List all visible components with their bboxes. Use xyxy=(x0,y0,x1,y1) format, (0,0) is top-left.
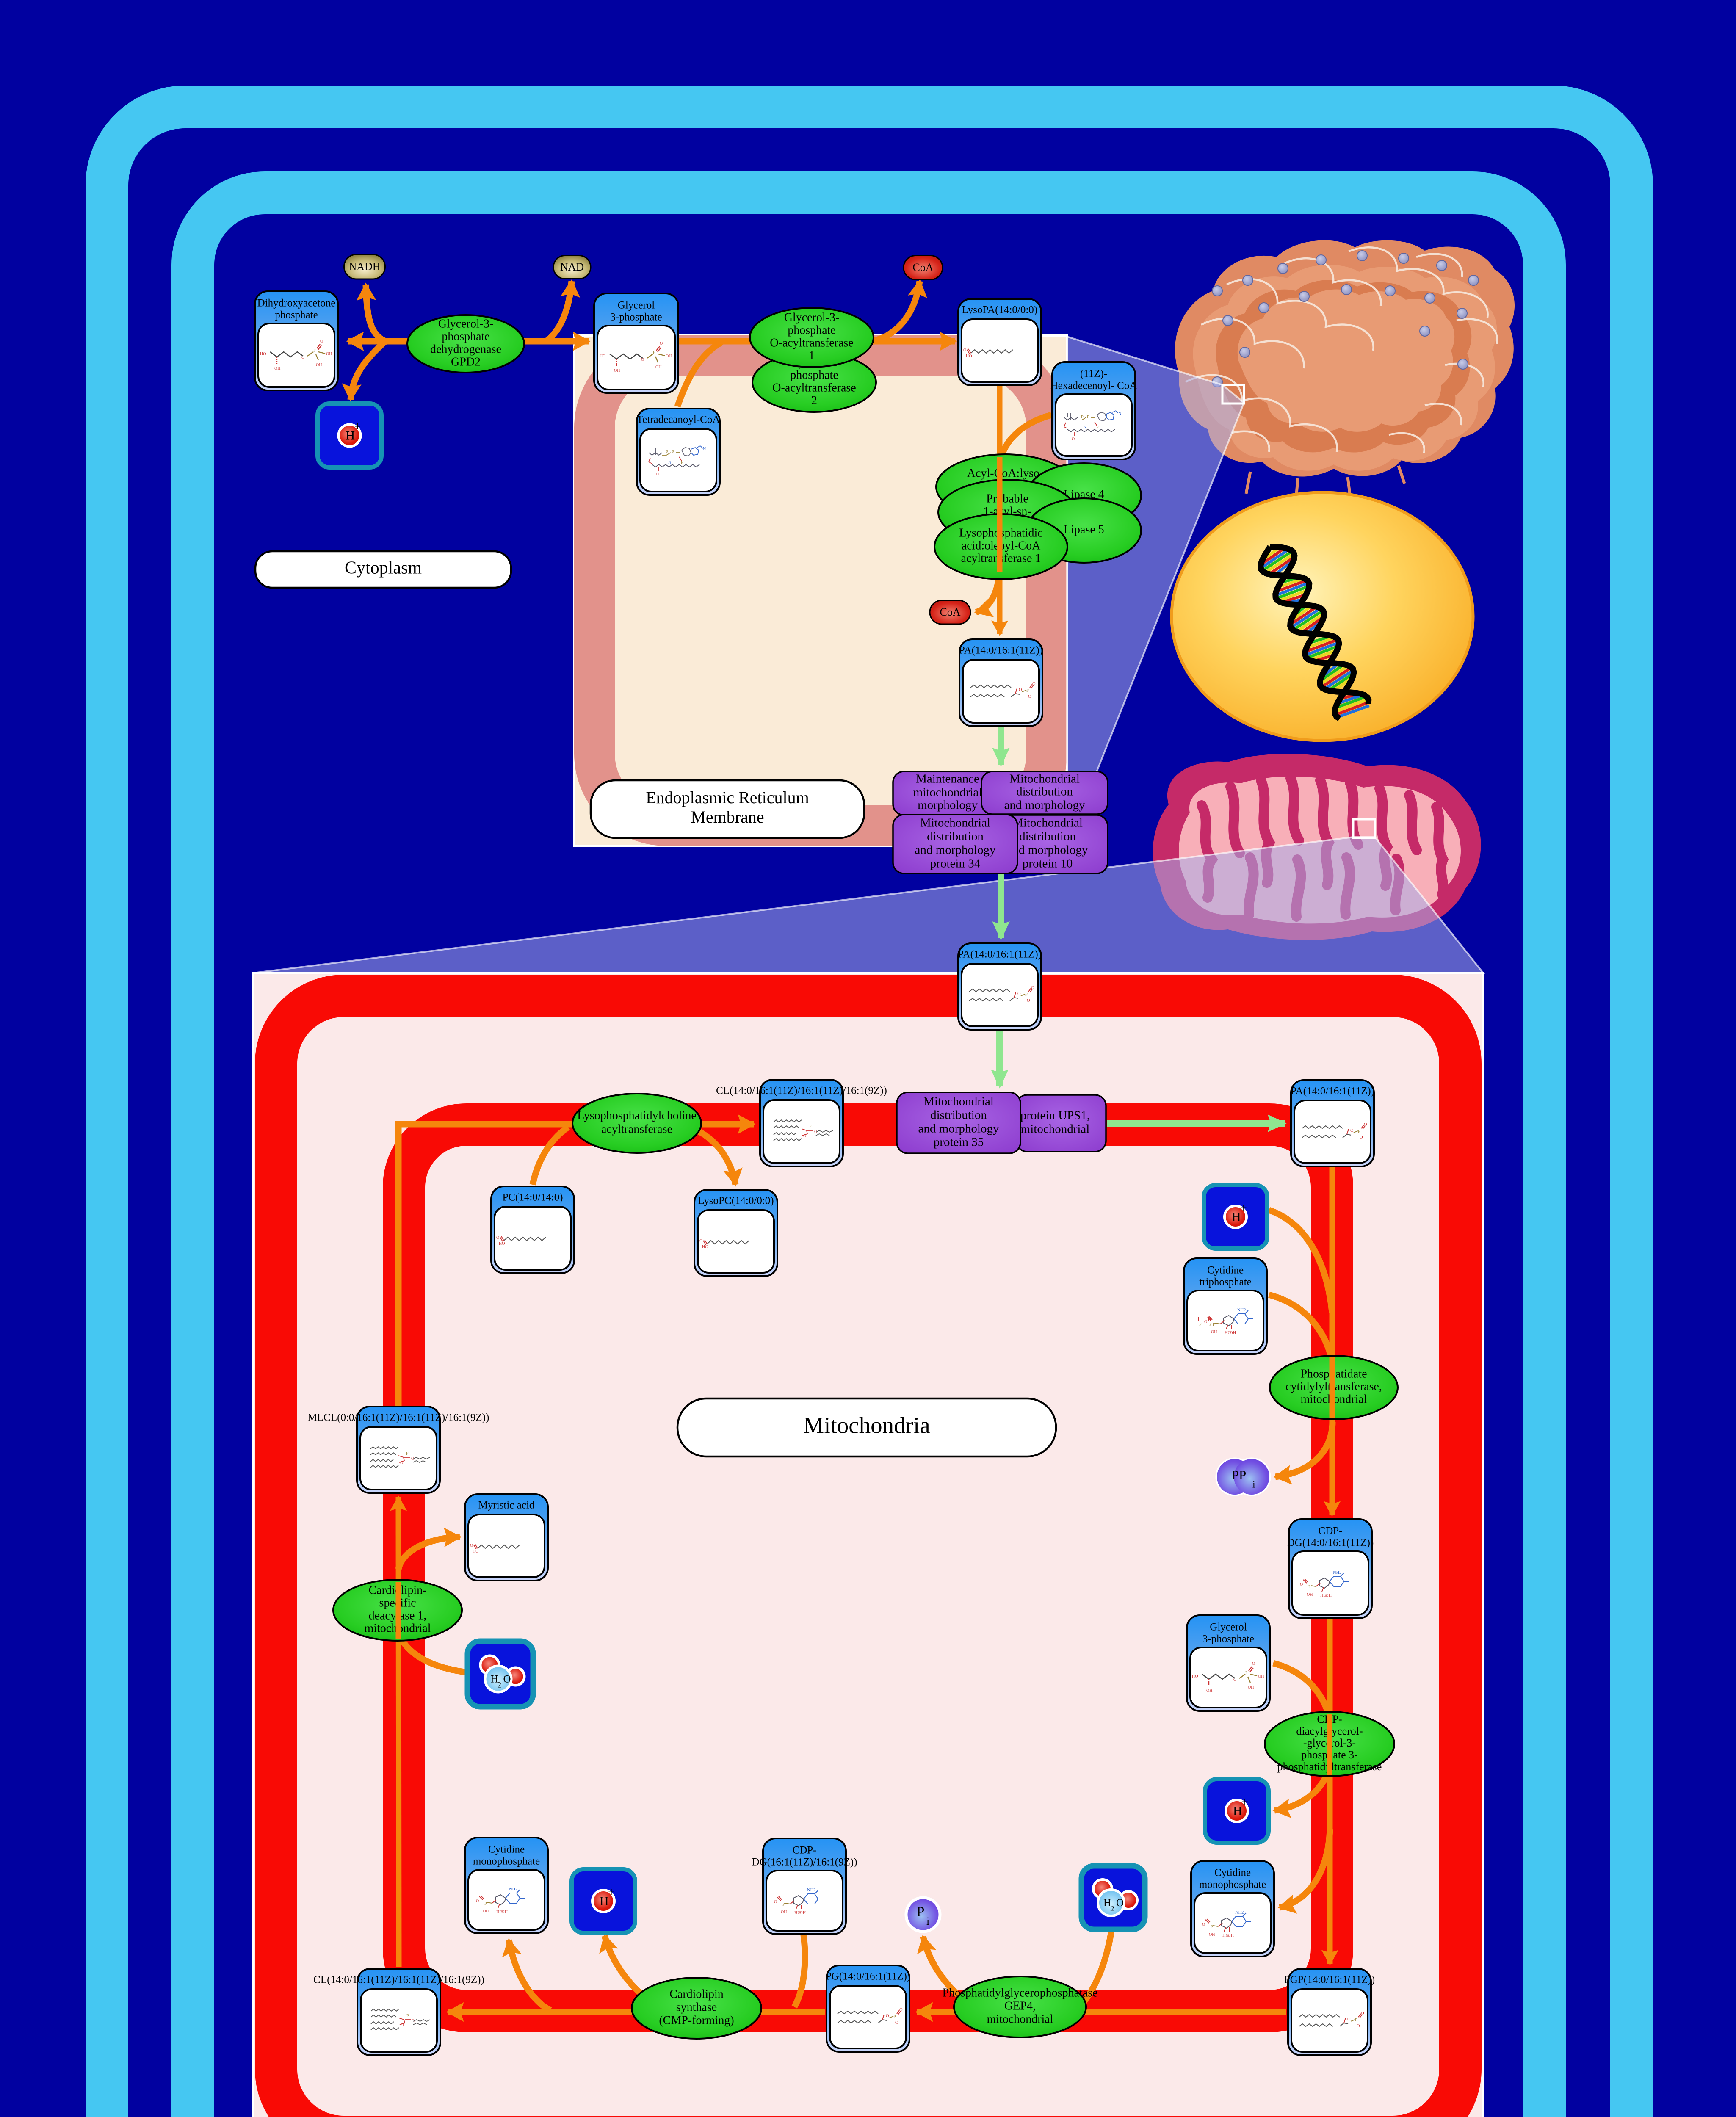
svg-text:P: P xyxy=(917,1904,925,1920)
svg-text:protein 10: protein 10 xyxy=(1023,857,1073,871)
svg-text:+: + xyxy=(354,420,361,434)
svg-text:Hexadecenoyl- CoA: Hexadecenoyl- CoA xyxy=(1050,380,1137,392)
svg-text:NAD: NAD xyxy=(560,261,584,273)
svg-text:DG(16:1(11Z)/16:1(9Z)): DG(16:1(11Z)/16:1(9Z)) xyxy=(752,1857,857,1868)
svg-text:Glycerol: Glycerol xyxy=(1210,1622,1247,1633)
svg-text:Mitochondrial: Mitochondrial xyxy=(920,816,990,830)
svg-text:H: H xyxy=(600,1894,609,1908)
svg-text:PG(14:0/16:1(11Z)): PG(14:0/16:1(11Z)) xyxy=(826,1971,910,1982)
svg-text:Phosphatidylglycerophosphatase: Phosphatidylglycerophosphatase xyxy=(942,1986,1097,1999)
svg-text:i: i xyxy=(926,1915,929,1927)
svg-text:PA(14:0/16:1(11Z)): PA(14:0/16:1(11Z)) xyxy=(958,949,1042,960)
svg-text:Cardiolipin: Cardiolipin xyxy=(669,1987,724,2001)
svg-text:H: H xyxy=(346,429,355,443)
svg-text:O: O xyxy=(503,1674,511,1685)
svg-text:+: + xyxy=(1241,1796,1248,1809)
svg-text:2: 2 xyxy=(1110,1904,1114,1913)
svg-text:+: + xyxy=(608,1886,615,1899)
svg-text:Glycerol: Glycerol xyxy=(618,300,655,311)
svg-text:O-acyltransferase: O-acyltransferase xyxy=(772,381,856,394)
svg-text:phosphate: phosphate xyxy=(790,368,838,381)
svg-text:protein 35: protein 35 xyxy=(934,1136,984,1149)
svg-text:phosphate: phosphate xyxy=(788,323,836,337)
svg-text:PA(14:0/16:1(11Z)): PA(14:0/16:1(11Z)) xyxy=(1291,1086,1374,1097)
svg-text:CDP-: CDP- xyxy=(1319,1526,1343,1537)
svg-text:and morphology: and morphology xyxy=(915,843,996,857)
svg-text:monophosphate: monophosphate xyxy=(1199,1879,1266,1890)
svg-text:triphosphate: triphosphate xyxy=(1199,1277,1252,1288)
svg-text:synthase: synthase xyxy=(676,2001,717,2014)
svg-text:i: i xyxy=(1252,1479,1255,1490)
svg-text:(11Z)-: (11Z)- xyxy=(1080,368,1107,380)
svg-text:Cytidine: Cytidine xyxy=(1214,1867,1251,1879)
svg-text:Mitochondrial: Mitochondrial xyxy=(1012,816,1083,830)
svg-text:Lysophosphatidylcholine: Lysophosphatidylcholine xyxy=(577,1109,697,1122)
svg-text:Cytoplasm: Cytoplasm xyxy=(345,558,422,578)
svg-text:morphology: morphology xyxy=(918,799,978,812)
svg-text:distribution: distribution xyxy=(1016,785,1073,799)
svg-text:Mitochondrial: Mitochondrial xyxy=(923,1095,994,1108)
svg-text:CL(14:0/16:1(11Z)/16:1(11Z)/16: CL(14:0/16:1(11Z)/16:1(11Z)/16:1(9Z)) xyxy=(716,1085,887,1097)
svg-text:PA(14:0/16:1(11Z)): PA(14:0/16:1(11Z)) xyxy=(959,645,1043,656)
svg-text:phosphate: phosphate xyxy=(275,310,318,321)
svg-text:distribution: distribution xyxy=(1019,830,1076,843)
svg-text:protein UPS1,: protein UPS1, xyxy=(1020,1109,1090,1122)
svg-text:phosphate: phosphate xyxy=(442,330,490,343)
svg-text:Glycerol-3-: Glycerol-3- xyxy=(438,317,494,330)
svg-text:1: 1 xyxy=(809,349,815,362)
svg-text:MLCL(0:0/16:1(11Z)/16:1(11Z)/1: MLCL(0:0/16:1(11Z)/16:1(11Z)/16:1(9Z)) xyxy=(308,1412,489,1423)
svg-text:monophosphate: monophosphate xyxy=(473,1856,540,1867)
svg-text:distribution: distribution xyxy=(927,830,984,843)
svg-text:PGP(14:0/16:1(11Z)): PGP(14:0/16:1(11Z)) xyxy=(1284,1974,1375,1986)
svg-text:LysoPA(14:0/0:0): LysoPA(14:0/0:0) xyxy=(962,304,1037,316)
svg-text:Dihydroxyacetone: Dihydroxyacetone xyxy=(257,298,336,309)
svg-text:GPD2: GPD2 xyxy=(451,355,481,368)
svg-text:CoA: CoA xyxy=(912,261,933,274)
svg-text:CL(14:0/16:1(11Z)/16:1(11Z)/16: CL(14:0/16:1(11Z)/16:1(11Z)/16:1(9Z)) xyxy=(313,1974,484,1986)
svg-text:mitochondrial: mitochondrial xyxy=(913,786,982,799)
svg-text:2: 2 xyxy=(811,394,817,407)
svg-text:Cytidine: Cytidine xyxy=(488,1844,525,1855)
svg-text:H: H xyxy=(1233,1804,1242,1818)
svg-text:Membrane: Membrane xyxy=(691,807,764,826)
svg-text:GEP4,: GEP4, xyxy=(1004,1999,1036,2012)
svg-text:CDP-: CDP- xyxy=(793,1845,817,1856)
svg-text:Probable: Probable xyxy=(986,492,1028,505)
svg-text:3-phosphate: 3-phosphate xyxy=(1202,1633,1254,1645)
svg-text:Mitochondria: Mitochondria xyxy=(803,1412,930,1438)
svg-text:O-acyltransferase: O-acyltransferase xyxy=(770,336,853,349)
svg-text:Tetradecanoyl-CoA: Tetradecanoyl-CoA xyxy=(637,414,720,426)
svg-text:O: O xyxy=(1116,1897,1124,1909)
svg-text:PP: PP xyxy=(1232,1468,1246,1482)
svg-text:mitochondrial: mitochondrial xyxy=(1021,1122,1090,1136)
svg-text:and morphology: and morphology xyxy=(918,1122,999,1136)
svg-text:PC(14:0/14:0): PC(14:0/14:0) xyxy=(502,1192,563,1203)
svg-text:DG(14:0/16:1(11Z)): DG(14:0/16:1(11Z)) xyxy=(1287,1537,1374,1549)
svg-text:and morphology: and morphology xyxy=(1007,843,1088,857)
svg-text:protein 34: protein 34 xyxy=(930,857,981,871)
svg-text:Cytidine: Cytidine xyxy=(1207,1265,1244,1276)
svg-text:H: H xyxy=(1232,1210,1241,1224)
svg-text:Glycerol-3-: Glycerol-3- xyxy=(784,311,840,324)
svg-text:LysoPC(14:0/0:0): LysoPC(14:0/0:0) xyxy=(698,1195,774,1207)
svg-text:Maintenance: Maintenance xyxy=(916,772,979,786)
svg-text:CoA: CoA xyxy=(940,606,960,618)
svg-text:Endoplasmic Reticulum: Endoplasmic Reticulum xyxy=(646,788,809,807)
svg-text:Acyl-CoA:lyso-: Acyl-CoA:lyso- xyxy=(967,467,1043,480)
svg-text:Lipase 5: Lipase 5 xyxy=(1064,523,1104,536)
svg-text:Mitochondrial: Mitochondrial xyxy=(1009,772,1080,786)
svg-text:2: 2 xyxy=(498,1681,502,1690)
svg-text:distribution: distribution xyxy=(930,1108,987,1122)
svg-text:+: + xyxy=(1240,1202,1247,1215)
svg-text:acyltransferase: acyltransferase xyxy=(601,1122,672,1136)
svg-text:(CMP-forming): (CMP-forming) xyxy=(659,2014,734,2027)
svg-text:and morphology: and morphology xyxy=(1004,799,1085,812)
svg-text:Myristic acid: Myristic acid xyxy=(478,1500,535,1511)
svg-text:3-phosphate: 3-phosphate xyxy=(610,312,662,323)
svg-text:mitochondrial: mitochondrial xyxy=(987,2012,1053,2026)
svg-text:NADH: NADH xyxy=(348,260,380,273)
svg-text:dehydrogenase: dehydrogenase xyxy=(430,343,501,356)
